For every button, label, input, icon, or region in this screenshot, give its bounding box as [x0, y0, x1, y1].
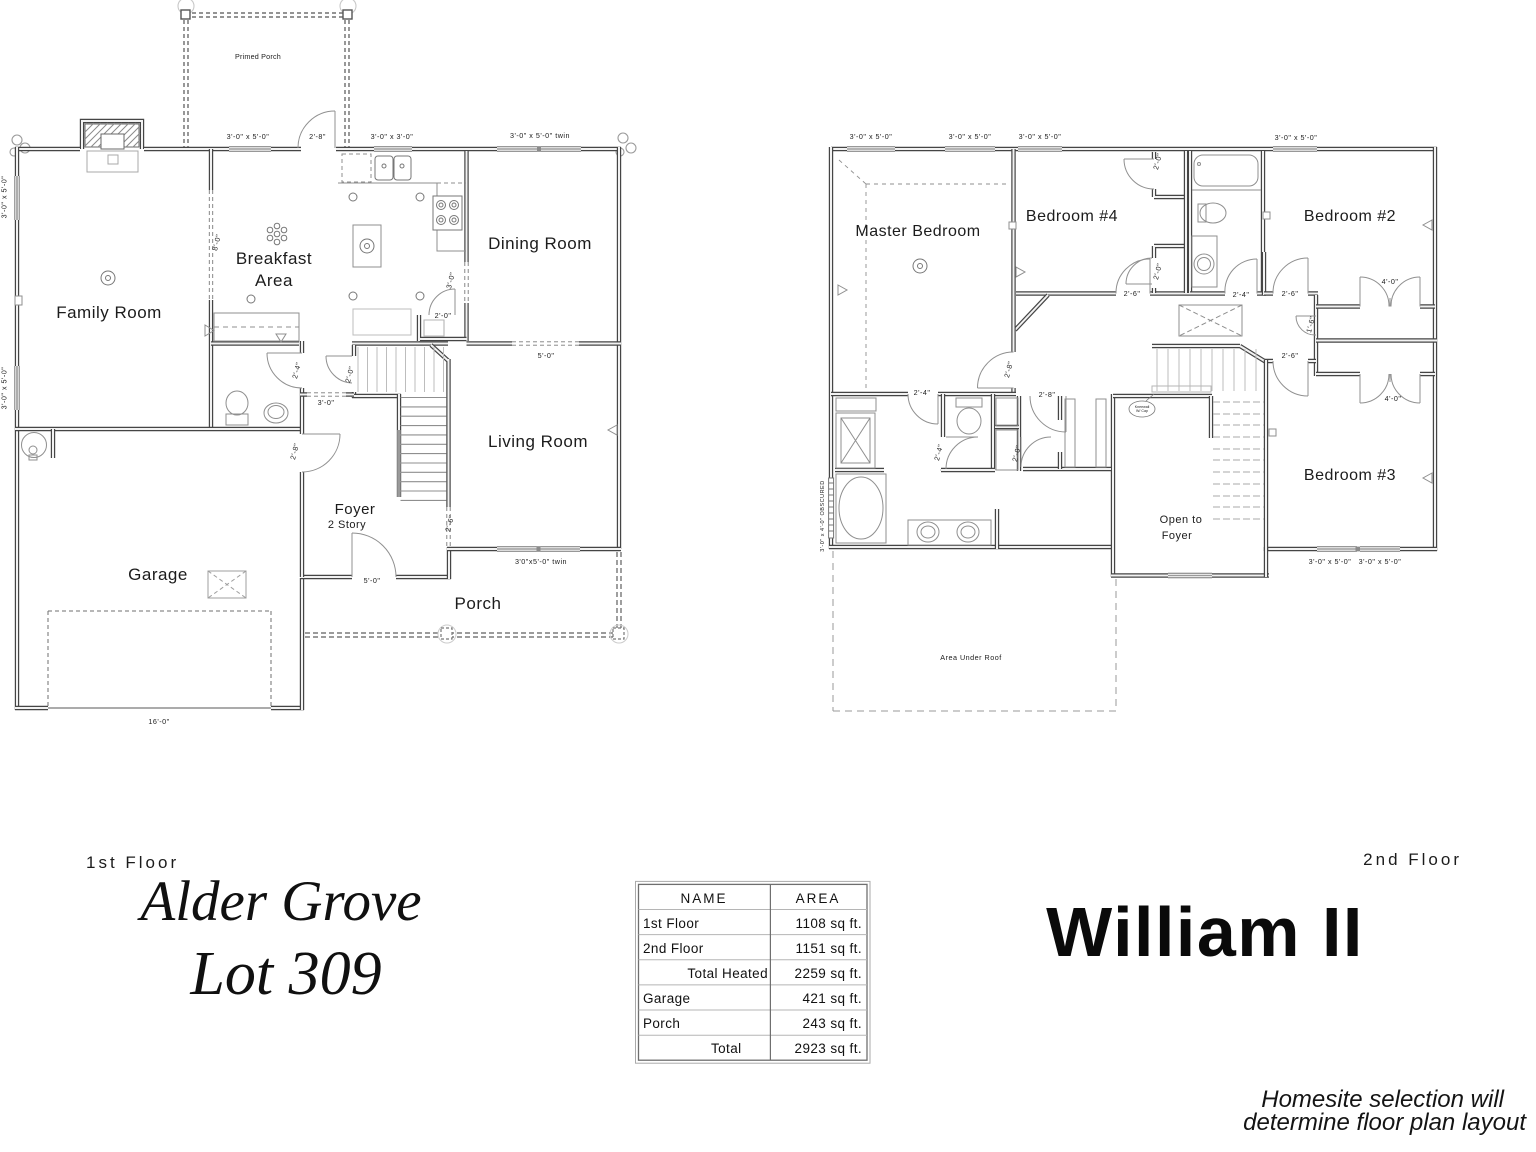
- svg-text:2'-6": 2'-6": [443, 514, 456, 533]
- svg-text:2nd Floor: 2nd Floor: [643, 941, 704, 956]
- svg-text:Bedroom #2: Bedroom #2: [1304, 208, 1396, 225]
- svg-text:3'-0" x 5'-0": 3'-0" x 5'-0": [1309, 557, 1352, 566]
- svg-text:Porch: Porch: [643, 1016, 680, 1031]
- svg-text:Total: Total: [711, 1041, 742, 1056]
- svg-text:Porch: Porch: [455, 594, 502, 613]
- svg-text:2'-4": 2'-4": [1233, 290, 1250, 299]
- svg-text:3'-0" x 5'-0": 3'-0" x 5'-0": [1359, 557, 1402, 566]
- svg-text:Area: Area: [255, 271, 293, 290]
- svg-text:1108 sq ft.: 1108 sq ft.: [796, 916, 862, 931]
- svg-text:2'-8": 2'-8": [1002, 360, 1015, 379]
- svg-text:2923 sq ft.: 2923 sq ft.: [795, 1041, 862, 1056]
- svg-text:Dining Room: Dining Room: [488, 234, 592, 253]
- svg-text:5'-0": 5'-0": [364, 576, 381, 585]
- svg-text:Breakfast: Breakfast: [236, 249, 312, 268]
- svg-text:Alder Grove: Alder Grove: [136, 870, 421, 933]
- svg-text:Primed Porch: Primed Porch: [235, 52, 281, 61]
- svg-text:2259 sq ft.: 2259 sq ft.: [795, 966, 862, 981]
- svg-text:16'-0": 16'-0": [148, 717, 169, 726]
- svg-text:3'-0" x 5'-0": 3'-0" x 5'-0": [850, 132, 893, 141]
- svg-text:2'-8": 2'-8": [1039, 390, 1056, 399]
- svg-text:Foyer: Foyer: [335, 501, 376, 518]
- svg-text:2'-0": 2'-0": [1151, 262, 1164, 281]
- svg-text:3'-0" x 4'-0" OBSCURED: 3'-0" x 4'-0" OBSCURED: [820, 480, 826, 551]
- svg-text:3'-0" x 5'-0": 3'-0" x 5'-0": [1019, 132, 1062, 141]
- svg-text:2'-4": 2'-4": [290, 361, 303, 380]
- svg-text:2'-6": 2'-6": [1282, 289, 1299, 298]
- svg-text:NAME: NAME: [680, 891, 727, 906]
- svg-text:Area Under Roof: Area Under Roof: [940, 653, 1001, 662]
- svg-text:3'-0": 3'-0": [444, 271, 457, 290]
- svg-text:2nd Floor: 2nd Floor: [1363, 850, 1462, 869]
- svg-text:3'-0" x 5'-0" twin: 3'-0" x 5'-0" twin: [510, 131, 570, 140]
- svg-text:2'-4": 2'-4": [914, 388, 931, 397]
- svg-text:Open to: Open to: [1160, 514, 1203, 526]
- svg-text:3'-0" x 5'-0": 3'-0" x 5'-0": [0, 367, 9, 410]
- svg-text:1151 sq ft.: 1151 sq ft.: [796, 941, 862, 956]
- svg-text:Total Heated: Total Heated: [687, 966, 768, 981]
- svg-text:Master Bedroom: Master Bedroom: [855, 223, 980, 240]
- svg-text:Family Room: Family Room: [56, 303, 162, 322]
- svg-text:Bedroom #4: Bedroom #4: [1026, 208, 1118, 225]
- svg-text:Garage: Garage: [128, 565, 188, 584]
- svg-text:4'-0": 4'-0": [1385, 394, 1402, 403]
- svg-text:2'-0": 2'-0": [435, 311, 452, 320]
- svg-text:3'0"x5'-0" twin: 3'0"x5'-0" twin: [515, 557, 567, 566]
- svg-text:5'-0": 5'-0": [538, 351, 555, 360]
- svg-text:3'-0" x 5'-0": 3'-0" x 5'-0": [227, 132, 270, 141]
- svg-text:2'-8": 2'-8": [309, 132, 326, 141]
- svg-text:Living Room: Living Room: [488, 432, 588, 451]
- svg-text:2'-8": 2'-8": [288, 442, 301, 461]
- svg-text:William II: William II: [1046, 893, 1364, 971]
- svg-text:421 sq ft.: 421 sq ft.: [802, 991, 862, 1006]
- svg-text:Lot 309: Lot 309: [189, 940, 381, 1008]
- svg-text:3'-0" x 5'-0": 3'-0" x 5'-0": [0, 176, 9, 219]
- svg-text:2'-4": 2'-4": [932, 443, 945, 462]
- svg-text:determine floor plan layout: determine floor plan layout: [1243, 1109, 1527, 1136]
- svg-text:AREA: AREA: [796, 891, 841, 906]
- svg-text:1st Floor: 1st Floor: [643, 916, 699, 931]
- svg-text:2'-6": 2'-6": [1282, 351, 1299, 360]
- svg-text:2 Story: 2 Story: [328, 519, 366, 531]
- svg-text:Bedroom #3: Bedroom #3: [1304, 467, 1396, 484]
- svg-text:3'-0" x 5'-0": 3'-0" x 5'-0": [949, 132, 992, 141]
- svg-text:3'-0" x 5'-0": 3'-0" x 5'-0": [1275, 133, 1318, 142]
- svg-text:4'-0": 4'-0": [1382, 277, 1399, 286]
- svg-text:2'-6": 2'-6": [1124, 289, 1141, 298]
- svg-text:8'-0": 8'-0": [210, 233, 223, 252]
- svg-text:Garage: Garage: [643, 991, 690, 1006]
- svg-text:2'-0": 2'-0": [343, 365, 356, 384]
- svg-text:243 sq ft.: 243 sq ft.: [802, 1016, 862, 1031]
- svg-text:3'-0": 3'-0": [318, 398, 335, 407]
- svg-text:W/ Cap: W/ Cap: [1136, 409, 1148, 413]
- svg-text:Foyer: Foyer: [1162, 530, 1193, 542]
- svg-text:3'-0" x 3'-0": 3'-0" x 3'-0": [371, 132, 414, 141]
